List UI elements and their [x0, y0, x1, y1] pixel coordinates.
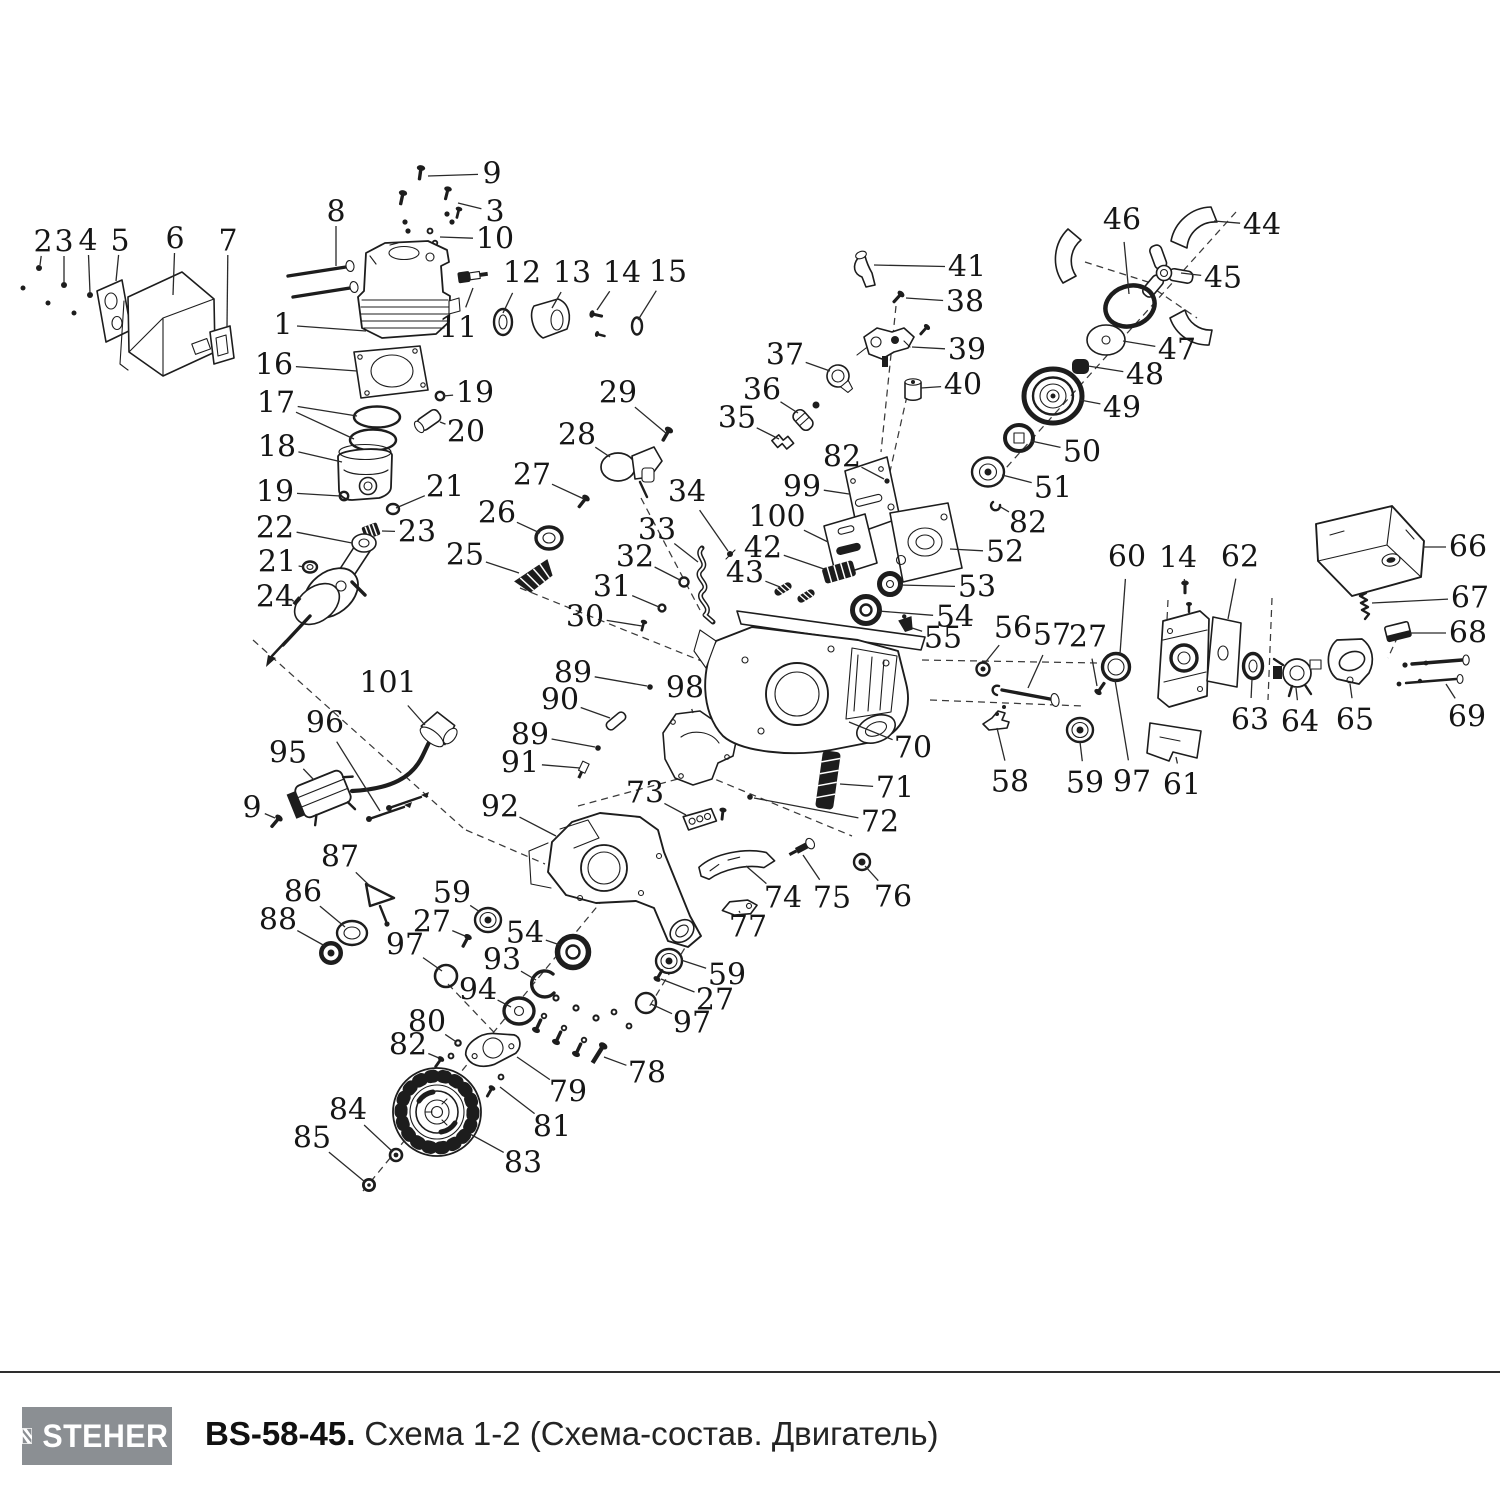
part-number-label: 25 [446, 538, 484, 573]
leader-line [638, 291, 656, 320]
leader-line [1176, 757, 1177, 764]
muffler-body-shape [128, 272, 215, 376]
part-number-label: 96 [306, 706, 344, 741]
leader-line [840, 784, 873, 786]
part-number-label: 6 [165, 222, 184, 257]
part-number-label: 51 [1034, 471, 1072, 506]
part-number-label: 76 [874, 880, 912, 915]
part-number-label: 92 [481, 790, 519, 825]
leader-line [486, 562, 519, 573]
leader-line [500, 1087, 535, 1114]
part-number-label: 48 [1126, 358, 1164, 393]
part-number-label: 9 [482, 157, 501, 192]
part-number-label: 28 [558, 418, 596, 453]
part-number-label: 38 [946, 285, 984, 320]
part-number-label: 64 [1281, 705, 1319, 740]
chain-tensioner-shape [815, 750, 841, 810]
leader-line [1184, 579, 1185, 582]
leader-line [1002, 475, 1032, 483]
brand-icon [22, 1416, 32, 1456]
leader-line [635, 407, 667, 434]
part-number-label: 71 [876, 771, 914, 806]
part-number-label: 77 [729, 910, 767, 945]
part-number-label: 21 [426, 470, 464, 505]
leader-line [997, 728, 1005, 761]
leader-line [297, 493, 340, 496]
part-number-label: 70 [894, 731, 932, 766]
leader-line [364, 1125, 393, 1152]
part-number-label: 43 [726, 556, 764, 591]
part-number-label: 60 [1108, 540, 1146, 575]
page-title: BS-58-45.Схема 1-2 (Схема-состав. Двигат… [205, 1415, 939, 1453]
cylinder-shape [358, 241, 450, 338]
part-number-label: 20 [447, 415, 485, 450]
leader-line [265, 814, 275, 818]
leader-line [874, 265, 945, 267]
part-number-label: 39 [948, 333, 986, 368]
leader-line [320, 906, 345, 927]
part-number-label: 4 [78, 224, 97, 259]
part-number-label: 59 [1066, 766, 1104, 801]
leader-line [408, 706, 425, 726]
leader-line [595, 447, 610, 457]
part-number-label: 11 [439, 311, 477, 346]
leader-line [423, 958, 442, 971]
part-number-label: 56 [994, 611, 1032, 646]
part-number-label: 63 [1231, 703, 1269, 738]
part-number-label: 50 [1063, 435, 1101, 470]
leader-line [396, 496, 425, 508]
part-number-label: 87 [321, 840, 359, 875]
part-number-label: 88 [259, 903, 297, 938]
part-number-label: 36 [743, 373, 781, 408]
leader-line [912, 628, 922, 631]
leader-line [700, 510, 728, 551]
part-number-label: 68 [1449, 616, 1487, 651]
part-number-label: 30 [566, 600, 604, 635]
leader-line [1031, 441, 1061, 447]
leader-line [517, 522, 540, 533]
leader-line [296, 412, 354, 439]
part-number-label: 82 [389, 1028, 427, 1063]
part-number-label: 78 [628, 1056, 666, 1091]
part-number-label: 79 [549, 1075, 587, 1110]
part-number-label: 40 [944, 368, 982, 403]
leader-line [1028, 655, 1043, 688]
leader-line [595, 677, 647, 686]
part-number-label: 41 [948, 250, 986, 285]
clutch-drum-shape [1024, 369, 1082, 423]
leader-line [356, 872, 371, 887]
part-number-label: 73 [626, 776, 664, 811]
leader-line [803, 855, 820, 880]
leader-line [597, 291, 610, 310]
leader-line [765, 581, 780, 587]
leader-line [1350, 684, 1352, 698]
leader-line [458, 203, 481, 209]
part-number-label: 13 [553, 256, 591, 291]
part-number-label: 5 [110, 224, 129, 259]
leader-line [552, 739, 595, 747]
part-number-label: 18 [258, 430, 296, 465]
leader-line [297, 326, 366, 331]
leader-line [440, 422, 446, 424]
part-number-label: 91 [501, 746, 539, 781]
leader-line [452, 931, 465, 936]
leader-line [757, 428, 779, 439]
leader-line [921, 387, 941, 388]
leader-line [899, 585, 955, 586]
part-number-label: 54 [506, 916, 544, 951]
part-number-label: 24 [256, 580, 294, 615]
spark-plug-shape [457, 268, 488, 283]
part-number-label: 55 [924, 621, 962, 656]
part-number-label: 46 [1103, 203, 1141, 238]
part-number-label: 7 [218, 224, 237, 259]
scheme-title: Схема 1-2 (Схема-состав. Двигатель) [364, 1415, 938, 1452]
part-number-label: 31 [593, 570, 631, 605]
leader-line [445, 1034, 455, 1041]
leader-line [552, 484, 584, 499]
part-number-label: 59 [708, 958, 746, 993]
part-number-label: 74 [764, 881, 802, 916]
part-number-label: 3 [54, 225, 73, 260]
intake-boot-shape [532, 299, 570, 338]
part-number-label: 58 [991, 765, 1029, 800]
part-number-label: 94 [459, 973, 497, 1008]
leader-line [520, 817, 557, 836]
leader-line [470, 1134, 504, 1152]
leader-line [1088, 366, 1123, 372]
part-number-label: 22 [256, 511, 294, 546]
part-number-label: 97 [1113, 765, 1151, 800]
part-number-label: 27 [513, 458, 551, 493]
leader-line [466, 288, 473, 307]
part-number-label: 33 [638, 513, 676, 548]
leader-line [661, 979, 695, 992]
leader-line [296, 367, 357, 371]
leader-line [806, 362, 830, 371]
leader-line [878, 611, 933, 615]
leader-line [298, 452, 342, 462]
part-number-label: 12 [503, 256, 541, 291]
leader-line [517, 1057, 550, 1080]
part-number-label: 19 [456, 376, 494, 411]
leader-line [470, 905, 480, 912]
part-number-label: 19 [256, 475, 294, 510]
part-number-label: 66 [1449, 530, 1487, 565]
part-number-label: 26 [478, 496, 516, 531]
leader-line [906, 298, 943, 301]
leader-line [428, 174, 478, 176]
ignition-coil-shape [285, 766, 364, 831]
exploded-parts-diagram: 1234567893101112131415161718192019212223… [0, 0, 1500, 1371]
handle-cover-shape [1316, 506, 1424, 596]
part-number-label: 75 [813, 881, 851, 916]
flywheel-shape [393, 1068, 481, 1156]
leader-line [1446, 684, 1455, 698]
part-number-label: 14 [603, 256, 641, 291]
part-number-label: 82 [823, 440, 861, 475]
leader-line [1228, 579, 1236, 619]
part-number-label: 100 [748, 500, 805, 535]
leader-line [428, 1054, 439, 1059]
leader-line [754, 798, 858, 818]
part-number-label: 8 [326, 195, 345, 230]
part-number-label: 67 [1451, 581, 1489, 616]
part-number-label: 101 [359, 666, 416, 701]
leader-line [1080, 742, 1082, 761]
part-number-label: 61 [1163, 768, 1201, 803]
part-number-label: 27 [1069, 620, 1107, 655]
leader-line [912, 347, 945, 349]
part-number-label: 90 [541, 683, 579, 718]
part-number-label: 62 [1221, 540, 1259, 575]
leader-line [1296, 688, 1297, 700]
leader-line [604, 1057, 626, 1065]
leader-line [784, 555, 824, 569]
part-number-label: 21 [258, 545, 296, 580]
leader-line [804, 530, 828, 542]
part-number-label: 37 [766, 338, 804, 373]
carburetor-bracket-shape [857, 328, 914, 367]
part-number-label: 45 [1204, 261, 1242, 296]
part-number-label: 65 [1336, 703, 1374, 738]
part-number-label: 95 [269, 736, 307, 771]
oil-pump-shape [1273, 659, 1321, 696]
part-number-label: 1 [273, 308, 292, 343]
crankcase-lower [529, 813, 701, 947]
part-number-label: 59 [433, 876, 471, 911]
leader-line [681, 960, 706, 968]
leader-line [298, 407, 357, 417]
part-number-label: 72 [861, 805, 899, 840]
crankcase-upper [683, 611, 925, 919]
leader-line [781, 402, 799, 413]
part-number-label: 10 [476, 222, 514, 257]
part-number-label: 23 [398, 515, 436, 550]
leader-line [297, 532, 352, 543]
muffler-assembly [21, 265, 235, 376]
part-number-label: 83 [504, 1146, 542, 1181]
leader-line [227, 255, 228, 327]
primer-bulb-shape [823, 361, 859, 398]
part-number-label: 44 [1243, 208, 1281, 243]
leader-line [297, 931, 325, 946]
exhaust-gasket-shape [210, 326, 234, 364]
leader-line [824, 490, 849, 494]
part-number-label: 85 [293, 1121, 331, 1156]
spark-plug-wire-shape [352, 736, 433, 791]
leader-line [329, 1152, 365, 1182]
brand-logo: STEHER [22, 1407, 172, 1465]
part-number-label: 34 [668, 475, 706, 510]
leader-line [542, 765, 580, 768]
part-number-label: 98 [666, 671, 704, 706]
leader-line [632, 596, 659, 607]
part-number-label: 81 [533, 1110, 571, 1145]
leader-line [865, 866, 878, 881]
part-number-label: 17 [257, 386, 295, 421]
part-number-label: 84 [329, 1093, 367, 1128]
part-number-label: 16 [255, 348, 293, 383]
leader-line [674, 544, 698, 563]
part-number-label: 29 [599, 376, 637, 411]
base-gasket-shape [354, 346, 428, 398]
part-number-label: 14 [1159, 541, 1197, 576]
leader-line [1372, 599, 1448, 603]
leader-line [1251, 679, 1252, 698]
leader-line [581, 708, 610, 719]
leader-line [655, 567, 680, 580]
leader-line [440, 237, 473, 238]
part-number-label: 57 [1033, 618, 1071, 653]
leader-line [664, 803, 686, 815]
part-number-label: 69 [1448, 700, 1486, 735]
brand-name: STEHER [43, 1418, 169, 1455]
leader-line [89, 255, 91, 293]
footer-divider [0, 1371, 1500, 1373]
muffler-gasket-shape [97, 280, 131, 342]
leader-line [443, 395, 453, 396]
part-number-label: 49 [1103, 391, 1141, 426]
part-number-label: 52 [986, 535, 1024, 570]
leader-line [1115, 680, 1128, 760]
part-number-label: 15 [649, 255, 687, 290]
leader-line [1120, 579, 1125, 654]
leader-line [1123, 341, 1155, 346]
leader-line [116, 255, 119, 281]
part-number-label: 2 [33, 225, 52, 260]
model-number: BS-58-45. [205, 1415, 355, 1452]
part-number-label: 9 [242, 791, 261, 826]
